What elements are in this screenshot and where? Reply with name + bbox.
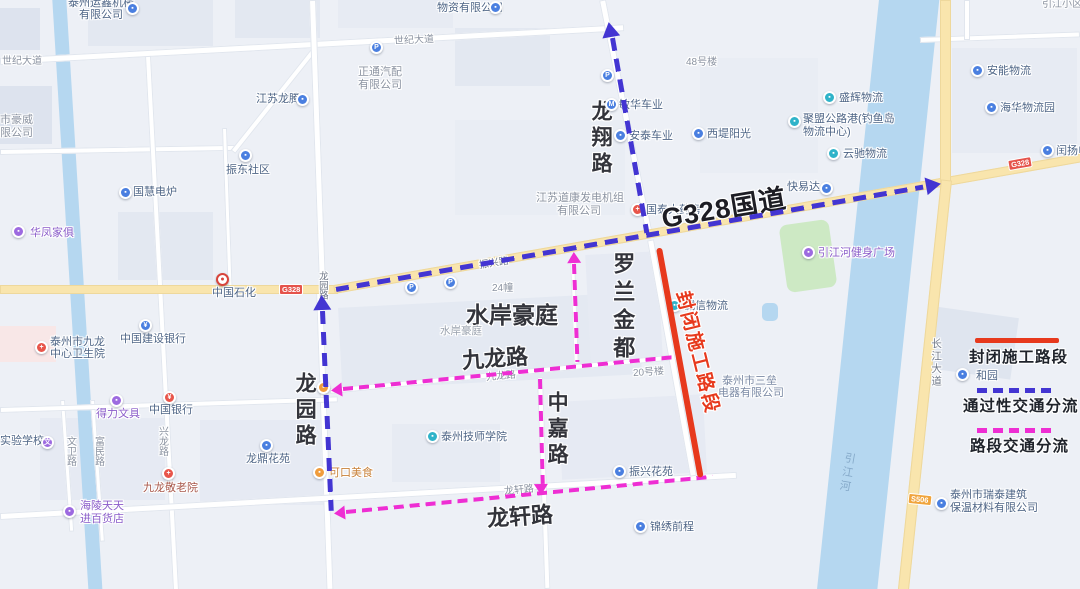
poi-jumeng-l2[interactable]: 物流中心) [803, 126, 851, 139]
poi-shiyan[interactable]: 实验学校 [0, 435, 44, 448]
poi-sinopec[interactable]: 中国石化 [212, 287, 256, 300]
poi-ruitai-l1[interactable]: 泰州市瑞泰建筑 [950, 489, 1027, 502]
poi-jinxiu[interactable]: 锦绣前程 [650, 521, 694, 534]
poi-ruitai-l2[interactable]: 保温材料有限公司 [950, 502, 1038, 515]
company-icon[interactable] [820, 182, 833, 195]
road-minor-west [0, 145, 235, 155]
poi-haowei-l1[interactable]: 市豪威 [0, 114, 33, 127]
arrowhead-section-shuian-east [567, 252, 581, 263]
poi-jianshen[interactable]: 引江河健身广场 [818, 247, 895, 260]
hospital-icon[interactable] [35, 341, 48, 354]
map-canvas[interactable]: G328 G328 S506 世纪大道 世纪大道 振兴路 龙园路 九龙路 龙轩路… [0, 0, 1080, 589]
poi-label-luolan[interactable]: 罗兰金都 [610, 252, 635, 364]
college-icon[interactable] [426, 430, 439, 443]
poi-zhengtong-l2[interactable]: 有限公司 [358, 79, 402, 92]
company-icon[interactable] [935, 497, 948, 510]
gas-station-icon[interactable] [216, 273, 229, 286]
nursing-home-icon[interactable] [162, 467, 175, 480]
poi-jumeng-l1[interactable]: 聚盟公路港(钓鱼岛 [803, 113, 895, 126]
factory-icon[interactable] [1041, 144, 1054, 157]
road-label-changjiang: 长江大道 [930, 338, 942, 388]
factory-icon[interactable] [126, 2, 139, 15]
poi-longteng[interactable]: 江苏龙腾 [256, 93, 300, 106]
city-block [118, 212, 213, 280]
road-label-longyuan-big: 龙园路 [292, 372, 316, 450]
logistics-icon[interactable] [788, 115, 801, 128]
logistics-icon[interactable] [971, 64, 984, 77]
poi-kekou[interactable]: 可口美食 [329, 467, 373, 480]
residence-icon[interactable] [692, 127, 705, 140]
arrowhead-section-longxuan [333, 506, 345, 521]
road-label-zhongjia-big: 中嘉路 [544, 391, 568, 469]
furniture-store-icon[interactable] [12, 225, 25, 238]
poi-haihua[interactable]: 海华物流园 [1000, 102, 1055, 115]
building-label-24: 24幢 [492, 283, 513, 295]
community-icon[interactable] [239, 149, 252, 162]
poi-daokang-l1[interactable]: 江苏道康发电机组 [536, 192, 624, 205]
pond [762, 303, 778, 321]
poi-boc[interactable]: 中国银行 [149, 404, 193, 417]
poi-haowei-l2[interactable]: 限公司 [0, 127, 33, 140]
residence-icon[interactable] [956, 368, 969, 381]
road-label-fumin: 富民路 [92, 436, 104, 466]
legend-section-swatch [977, 428, 1057, 433]
poi-shenghui[interactable]: 盛辉物流 [839, 92, 883, 105]
road-label-wenwei: 文卫路 [64, 436, 76, 466]
poi-jinglao[interactable]: 九龙敬老院 [143, 482, 198, 495]
city-block [235, 0, 320, 38]
poi-anneng[interactable]: 安能物流 [987, 65, 1031, 78]
arrowhead-through-longyuan [313, 295, 332, 311]
metro-icon[interactable] [605, 98, 618, 111]
poi-yunxin-l2[interactable]: 有限公司 [79, 9, 123, 22]
poi-kuaiyida[interactable]: 快易达 [787, 181, 820, 194]
city-block [700, 58, 818, 173]
company-icon[interactable] [296, 93, 309, 106]
legend-closed-swatch [975, 338, 1059, 343]
building-label-20: 20号楼 [633, 366, 665, 380]
health-center-block [0, 326, 56, 362]
poi-huafeng[interactable]: 华凤家俱 [30, 227, 74, 240]
poi-heyuan[interactable]: 和园 [976, 370, 998, 383]
factory-icon[interactable] [119, 186, 132, 199]
arrowhead-through-g328 [925, 175, 943, 195]
road-changjiang-north [940, 0, 951, 185]
road-zhendong [222, 128, 233, 293]
poi-ccb[interactable]: 中国建设银行 [120, 333, 186, 346]
road-label-shiji-mid: 世纪大道 [394, 34, 435, 48]
school-icon[interactable] [41, 436, 54, 449]
poi-yunchi[interactable]: 云驰物流 [843, 148, 887, 161]
parking-icon[interactable] [444, 276, 457, 289]
logistics-icon[interactable] [985, 101, 998, 114]
logistics-icon[interactable] [823, 91, 836, 104]
legend-closed-label: 封闭施工路段 [969, 349, 1068, 367]
city-block [952, 48, 1077, 153]
arrowhead-through-longxiang [600, 21, 620, 39]
parking-icon[interactable] [405, 281, 418, 294]
bank-icon[interactable] [163, 391, 176, 404]
poi-guohui[interactable]: 国慧电炉 [133, 186, 177, 199]
poi-yinjiang-xq[interactable]: 引江小区 [1042, 0, 1080, 11]
road-label-longxiang-big: 龙翔路 [588, 100, 612, 178]
city-block [338, 0, 453, 28]
poi-xidi[interactable]: 西堤阳光 [707, 128, 751, 141]
g328-badge-west: G328 [279, 284, 303, 295]
residence-icon[interactable] [634, 520, 647, 533]
city-block [0, 8, 40, 50]
road-label-xinglong: 兴龙路 [156, 426, 168, 456]
poi-runyang[interactable]: 闰扬电机 [1056, 145, 1080, 158]
building-icon[interactable] [489, 1, 502, 14]
poi-zhenxing-hy[interactable]: 振兴花苑 [629, 466, 673, 479]
poi-sanlei-l1[interactable]: 泰州市三垒 [722, 375, 777, 388]
stationery-store-icon[interactable] [110, 394, 123, 407]
residence-icon[interactable] [613, 465, 626, 478]
poi-zhendong[interactable]: 振东社区 [226, 164, 270, 177]
building-label-48: 48号楼 [686, 57, 717, 69]
poi-hailing-l2[interactable]: 进百货店 [80, 513, 124, 526]
poi-deli[interactable]: 得力文具 [96, 408, 140, 421]
food-icon[interactable] [313, 466, 326, 479]
s506-badge: S506 [907, 493, 932, 506]
poi-zhengtong-l1[interactable]: 正通汽配 [358, 66, 402, 79]
poi-jishi[interactable]: 泰州技师学院 [441, 431, 507, 444]
logistics-icon[interactable] [827, 147, 840, 160]
road-topright-vertical [964, 0, 970, 40]
bank-icon[interactable] [139, 319, 152, 332]
parking-icon[interactable] [601, 69, 614, 82]
auto-shop-icon[interactable] [614, 129, 627, 142]
poi-weishengyuan-l1[interactable]: 泰州市九龙 [50, 336, 105, 349]
poi-hailing-l1[interactable]: 海陵天天 [80, 500, 124, 513]
fitness-park-icon[interactable] [802, 246, 815, 259]
legend-through-label: 通过性交通分流 [963, 398, 1079, 416]
poi-sanlei-l2[interactable]: 电器有限公司 [718, 387, 784, 400]
store-icon[interactable] [63, 505, 76, 518]
legend-through-swatch [977, 388, 1057, 393]
poi-weishengyuan-l2[interactable]: 中心卫生院 [50, 348, 105, 361]
legend-section-label: 路段交通分流 [970, 438, 1069, 456]
arrowhead-section-jiulong [330, 383, 342, 398]
residence-icon[interactable] [260, 439, 273, 452]
poi-antai[interactable]: 安泰车业 [629, 130, 673, 143]
poi-longding[interactable]: 龙鼎花苑 [246, 453, 290, 466]
poi-daokang-l2[interactable]: 有限公司 [557, 205, 601, 218]
road-label-longxuan-big: 龙轩路 [486, 502, 554, 532]
road-label-shiji-west: 世纪大道 [2, 56, 42, 68]
parking-icon[interactable] [370, 41, 383, 54]
poi-label-shuian-small[interactable]: 水岸豪庭 [440, 325, 482, 337]
